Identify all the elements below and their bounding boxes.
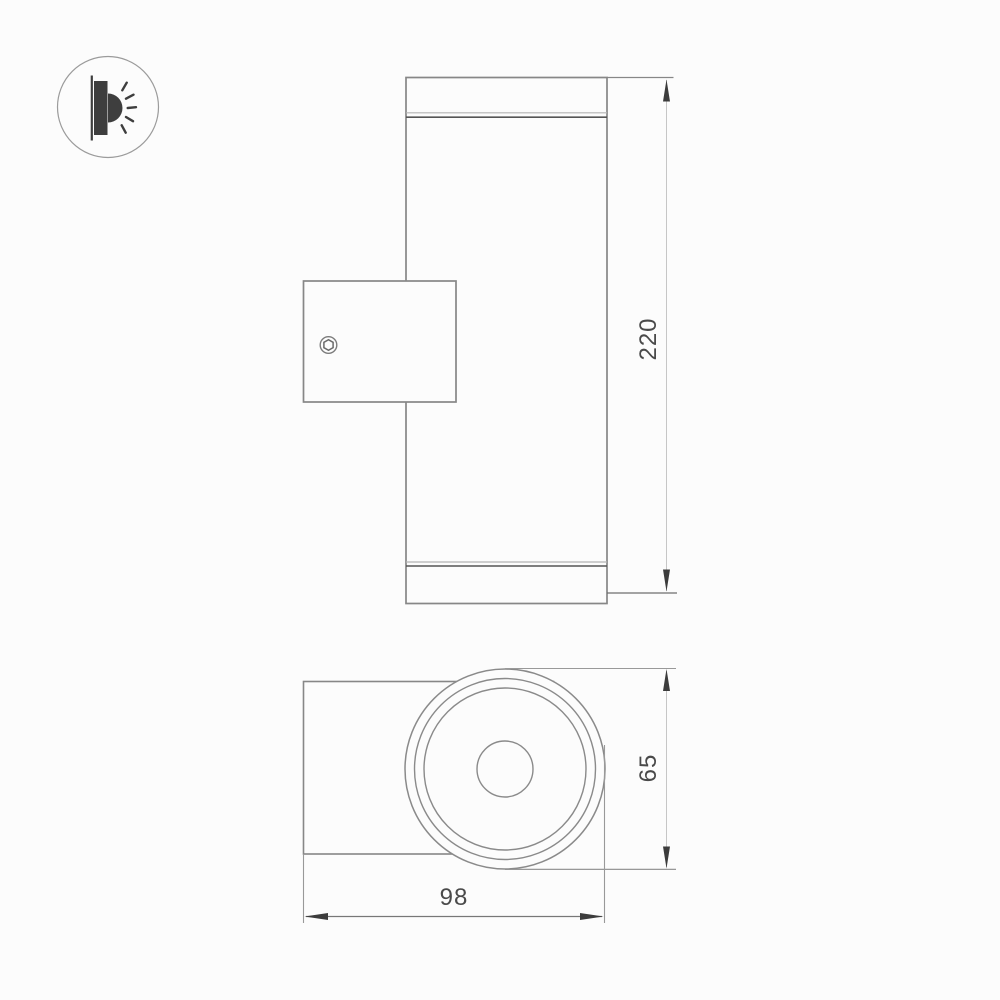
arrow-left-icon (305, 913, 329, 920)
diameter-dimension-label: 65 (635, 754, 662, 783)
outer-body-circle (405, 669, 605, 869)
light-rays-icon (122, 83, 136, 133)
light-ray (126, 117, 133, 121)
front-view (304, 669, 606, 869)
wall-light-icon (58, 57, 159, 158)
height-dimension-label: 220 (635, 317, 662, 360)
light-ray (126, 95, 134, 99)
arrow-right-icon (580, 913, 604, 920)
fixture-body-shape (94, 81, 108, 135)
light-ray (122, 125, 126, 132)
arrow-up-icon (663, 80, 670, 102)
depth-dimension-label: 98 (440, 884, 469, 911)
lens-semicircle (108, 94, 122, 123)
drawing-page: 220 65 98 (0, 0, 1000, 1000)
arrow-up-icon (663, 669, 670, 691)
technical-drawing-canvas: 220 65 98 (0, 0, 1000, 1000)
arrow-down-icon (663, 570, 670, 592)
dimension-height: 220 (607, 78, 677, 594)
light-ray (128, 107, 136, 108)
arrow-down-icon (663, 847, 670, 869)
side-view (304, 78, 608, 604)
light-ray (122, 83, 126, 91)
